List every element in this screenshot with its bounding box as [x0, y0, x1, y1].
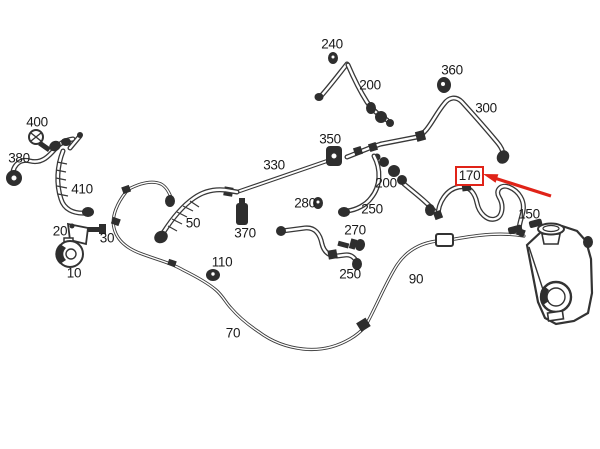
- part-label-30[interactable]: 30: [100, 231, 114, 245]
- clip-110-art: [206, 269, 220, 281]
- y-hose-200-top-art: [315, 64, 395, 127]
- part-label-150[interactable]: 150: [518, 207, 540, 221]
- part-label-350[interactable]: 350: [319, 132, 341, 146]
- diagram-line-art: [0, 0, 600, 449]
- part-label-240[interactable]: 240: [321, 37, 343, 51]
- part-label-50[interactable]: 50: [186, 216, 200, 230]
- hose-410-art: [47, 132, 94, 217]
- part-label-330[interactable]: 330: [263, 158, 285, 172]
- bolt-270-art: [337, 238, 366, 252]
- part-label-110[interactable]: 110: [212, 255, 233, 269]
- feeder-pipe-art: [111, 182, 175, 226]
- expansion-tank-art: [527, 224, 593, 325]
- part-label-380[interactable]: 380: [8, 151, 30, 165]
- clip-360-art: [437, 77, 451, 93]
- part-label-20[interactable]: 20: [53, 224, 67, 238]
- part-label-200-mid[interactable]: 200: [375, 176, 397, 190]
- part-label-370[interactable]: 370: [234, 226, 256, 240]
- clip-240-art: [328, 52, 338, 64]
- part-label-360[interactable]: 360: [441, 63, 463, 77]
- part-label-400[interactable]: 400: [26, 115, 48, 129]
- part-label-250-bottom[interactable]: 250: [339, 267, 361, 281]
- part-label-90[interactable]: 90: [409, 272, 423, 286]
- part-label-250-mid[interactable]: 250: [361, 202, 383, 216]
- part-label-410[interactable]: 410: [71, 182, 93, 196]
- bolt-400-art: [29, 130, 51, 152]
- part-label-200-top[interactable]: 200: [359, 78, 381, 92]
- part-label-270[interactable]: 270: [344, 223, 366, 237]
- part-label-170: 170: [459, 169, 481, 183]
- part-label-280[interactable]: 280: [294, 196, 316, 210]
- part-label-10[interactable]: 10: [67, 266, 81, 280]
- parts-diagram: 240 200 360 300 400 380 350 330 410 200 …: [0, 0, 600, 449]
- part-label-300[interactable]: 300: [475, 101, 497, 115]
- pipe-90-art: [356, 234, 524, 332]
- highlighted-part-box[interactable]: 170: [455, 166, 484, 186]
- grommet-350-art: [326, 146, 342, 166]
- part-label-70[interactable]: 70: [226, 326, 240, 340]
- sensor-370-art: [236, 198, 248, 225]
